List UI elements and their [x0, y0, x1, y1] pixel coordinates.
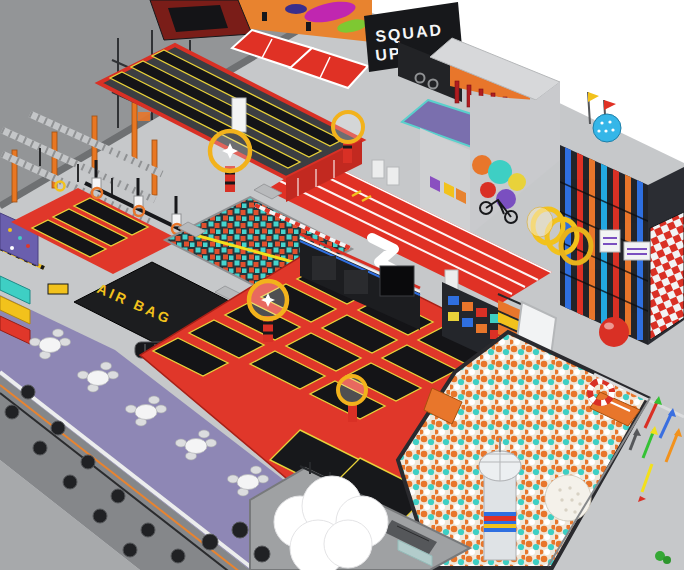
wall-screen — [380, 266, 414, 296]
kiosk-2 — [387, 167, 399, 185]
rocket-tower — [479, 438, 521, 560]
trampoline-park-render: SQUAD UP — [0, 0, 684, 570]
white-column — [232, 98, 246, 132]
kiosk-1 — [372, 160, 384, 178]
golf-ball-sphere — [545, 475, 591, 521]
checker-climb-wall — [650, 212, 684, 340]
red-ball — [599, 317, 629, 347]
scene-canvas: SQUAD UP — [0, 0, 684, 570]
